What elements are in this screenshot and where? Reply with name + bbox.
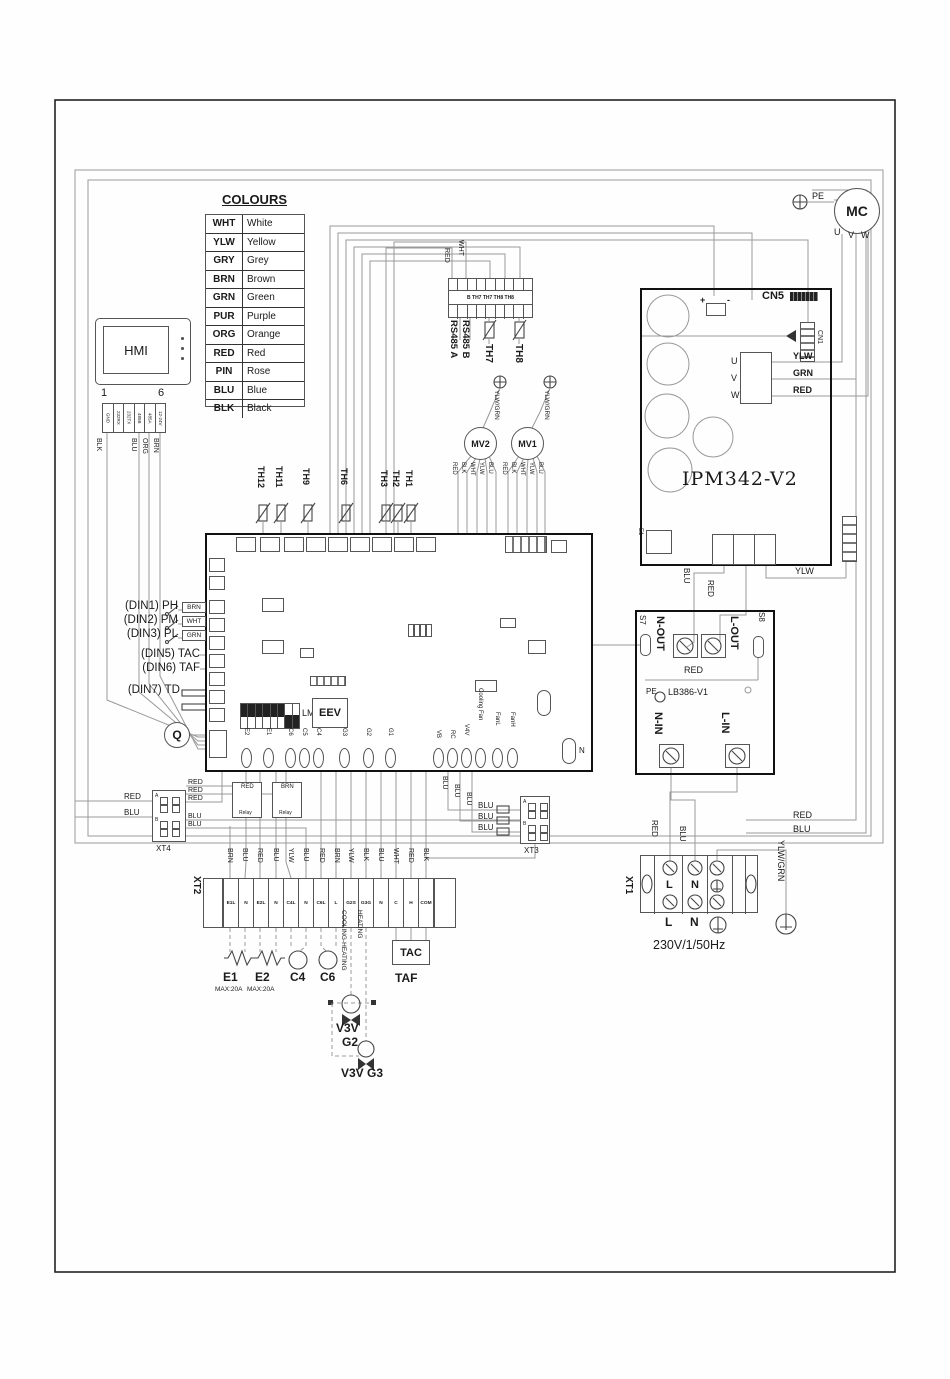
relay-output	[299, 748, 310, 768]
n-out-terminal	[673, 634, 698, 658]
board-connector	[500, 618, 516, 628]
mv1-valve: MV1	[511, 427, 544, 460]
colour-code: GRN	[206, 289, 242, 307]
output-label: C6	[287, 728, 293, 736]
dc-plus: +	[700, 295, 705, 305]
board-connector	[209, 558, 225, 572]
mv2-valve: MV2	[464, 427, 497, 460]
wire-color: RED	[706, 580, 715, 597]
xt2-terminal: C6L	[316, 901, 325, 906]
wire-color: BLU	[188, 821, 202, 828]
wire-color: RED	[256, 848, 263, 863]
lb386-title: LB386-V1	[668, 687, 708, 697]
tac-label: TAC	[400, 947, 422, 959]
hmi-pin: GND	[105, 413, 110, 423]
n-terminal	[562, 738, 576, 764]
output-label: FanL	[494, 712, 500, 726]
sensor-label: TH1	[404, 470, 414, 487]
wire-color: RED	[124, 792, 141, 801]
uvw-terminal-block	[740, 352, 772, 404]
xt1-n-bot: N	[690, 915, 699, 929]
colour-name: Black	[242, 400, 304, 418]
din3-label: (DIN3) PL	[78, 628, 178, 640]
hmi-wires	[107, 433, 205, 749]
phase-u: U	[834, 227, 841, 237]
sensor-label: TH2	[391, 470, 401, 487]
n-in-label: N-IN	[652, 712, 664, 735]
relay-output	[339, 748, 350, 768]
din2-label: (DIN2) PM	[78, 614, 178, 626]
colour-code: ORG	[206, 326, 242, 344]
eev-label: EEV	[319, 707, 341, 719]
tac-box: TAC	[392, 940, 430, 965]
ipm-title: IPM342-V2	[682, 468, 798, 490]
colour-code: GRY	[206, 252, 242, 270]
xt2-terminal: C	[394, 901, 397, 906]
hmi-pin-last: 6	[158, 387, 164, 399]
relay-brn: BRN Relay	[272, 782, 302, 818]
wire-color: GRN	[793, 368, 813, 378]
hmi-pin: 485A	[147, 413, 152, 424]
taf-label: TAF	[395, 971, 417, 985]
xt2-terminal: H	[409, 901, 412, 906]
relay-red: RED Relay	[232, 782, 262, 818]
wire-color: BRN	[226, 848, 233, 863]
wire-color: RED	[188, 779, 203, 786]
wire-color: YLW	[793, 351, 813, 361]
xt2-label: XT2	[191, 876, 202, 894]
v3v-label: V3V	[336, 1021, 359, 1035]
wire-color: RED	[684, 665, 703, 675]
wire-color: YLW	[347, 848, 354, 863]
ipm-v: V	[731, 373, 737, 383]
colour-code: WHT	[206, 215, 242, 233]
phase-v: V	[848, 230, 854, 240]
wire-color: BRN	[187, 604, 201, 611]
wire-color: WHT	[457, 240, 464, 256]
wire-color: YLW	[478, 462, 484, 475]
s8-label: S8	[757, 612, 766, 622]
hmi-button-icon	[181, 357, 184, 360]
xt2-terminal: G2S	[346, 901, 356, 906]
wire-color: BLU	[377, 848, 384, 862]
hmi-pin: 12-24V	[158, 411, 163, 426]
wire-color: RED	[188, 787, 203, 794]
load-e1-max: MAX:20A	[215, 986, 242, 993]
hmi-label: HMI	[124, 343, 148, 358]
colour-name: White	[242, 215, 304, 233]
e1-label: E1	[637, 528, 643, 535]
xt2-terminal: N	[244, 901, 247, 906]
relay-output	[492, 748, 503, 768]
board-connector	[209, 730, 227, 758]
wire-color: BLU	[678, 826, 687, 842]
rs485a-label: RS485 A	[448, 320, 459, 358]
wire-color: BLU	[130, 438, 137, 452]
board-connector	[260, 537, 280, 552]
colour-code: BRN	[206, 271, 242, 289]
colour-name: Brown	[242, 271, 304, 289]
xt2-terminal: N	[304, 901, 307, 906]
xt2-endcap	[434, 878, 456, 928]
row-b: B	[155, 817, 158, 823]
relay-name: Relay	[239, 810, 252, 816]
wire-color: BRN	[333, 848, 340, 863]
wire-color: BLU	[241, 848, 248, 862]
hmi-pin-first: 1	[101, 387, 107, 399]
xt2-terminal: E2L	[257, 901, 266, 906]
g2-label: G2	[342, 1035, 358, 1049]
colour-code: RED	[206, 345, 242, 363]
output-label: G1	[387, 728, 393, 736]
wire-color: BLK	[95, 438, 102, 451]
board-connector	[262, 598, 284, 612]
board-connector	[236, 537, 256, 552]
n-out-label: N-OUT	[654, 616, 666, 651]
wire-color: BLK	[460, 462, 466, 473]
board-connector	[209, 654, 225, 668]
mv2-label: MV2	[471, 439, 490, 449]
board-connector	[505, 536, 547, 553]
cn5-connector	[790, 292, 818, 301]
ipm-w: W	[731, 390, 740, 400]
xt2-endcap	[203, 878, 223, 928]
hmi-pin: 485B	[137, 413, 142, 424]
xt3-block: A B	[520, 796, 550, 844]
dc-link-connector	[706, 303, 726, 316]
colour-code: YLW	[206, 234, 242, 252]
load-e2-max: MAX:20A	[247, 986, 274, 993]
rs485b-label: RS485 B	[460, 320, 471, 359]
eev-driver: EEV	[312, 698, 348, 728]
supply-label: 230V/1/50Hz	[653, 938, 725, 952]
board-connector	[209, 708, 225, 722]
xt2-terminal: C4L	[286, 901, 295, 906]
xt1-n-top: N	[691, 879, 699, 891]
hmi-pin: 232RX	[116, 411, 121, 425]
xt2-terminal: G3G	[361, 901, 371, 906]
board-connector	[209, 576, 225, 590]
output-label: VB	[435, 730, 441, 738]
din7-label: (DIN7) TD	[75, 684, 180, 696]
relay-output	[241, 748, 252, 768]
sensor-label: TH12	[256, 466, 266, 488]
output-label: V4V	[463, 724, 469, 735]
colour-name: Blue	[242, 382, 304, 400]
output-label: C5	[301, 728, 307, 736]
comm-row-label: B TH7 TH7 TH8 TH8	[467, 295, 514, 301]
wire-color: RED	[793, 385, 812, 395]
output-label: RC	[449, 730, 455, 739]
colours-title: COLOURS	[222, 192, 287, 207]
wire-color: RED	[318, 848, 325, 863]
relay-name: Relay	[279, 810, 292, 816]
hmi-screen: HMI	[103, 326, 169, 374]
wire-color: RED	[793, 810, 812, 820]
ipm-u: U	[731, 356, 738, 366]
output-label: FanH	[509, 712, 515, 727]
row-b: B	[523, 821, 526, 827]
q-label: Q	[172, 728, 181, 742]
mv1-label: MV1	[518, 439, 537, 449]
hmi-connector: GND 232RX 232TX 485B 485A 12-24V	[102, 403, 166, 433]
wire-color: WHT	[519, 462, 525, 476]
output-label: E1	[265, 728, 271, 735]
board-connector	[416, 537, 436, 552]
wire-color: YLW	[795, 566, 814, 576]
xt3-label: XT3	[524, 846, 539, 855]
colour-code: PUR	[206, 308, 242, 326]
relay-output	[263, 748, 274, 768]
wire-color: BLU	[487, 462, 493, 474]
colour-name: Green	[242, 289, 304, 307]
wire-color: BLU	[453, 784, 460, 798]
xt1-block	[640, 855, 758, 913]
v3v-g3-label: V3V G3	[341, 1066, 383, 1080]
output-label: G2	[365, 728, 371, 736]
wiring-diagram-page: COLOURS WHTWhite YLWYellow GRYGrey BRNBr…	[0, 0, 950, 1379]
colour-code: BLK	[206, 400, 242, 418]
relay-output	[385, 748, 396, 768]
xt4-label: XT4	[156, 844, 171, 853]
n-label: N	[579, 746, 585, 755]
sensor-label: TH6	[339, 468, 349, 485]
wire-color: BLU	[441, 776, 448, 790]
colour-code: PIN	[206, 363, 242, 381]
xt2-terminal: N	[274, 901, 277, 906]
phase-w: W	[861, 230, 870, 240]
relay-output	[461, 748, 472, 768]
board-connector	[350, 537, 370, 552]
output-label: C4	[315, 728, 321, 736]
colour-name: Red	[242, 345, 304, 363]
compressor-label: MC	[846, 203, 868, 219]
board-connector	[209, 690, 225, 704]
wire-color: BLU	[478, 812, 494, 821]
th8-label: TH8	[513, 344, 524, 363]
dc-minus: -	[727, 295, 730, 305]
wire-color: YLW/GRN	[776, 840, 786, 881]
wire-color: RED	[407, 848, 414, 863]
load-c6: C6	[320, 970, 335, 984]
board-connector	[262, 640, 284, 654]
board-connector	[537, 690, 551, 716]
eev-connector	[310, 676, 346, 686]
wire-color: BLU	[272, 848, 279, 862]
wire-color: BLU	[537, 462, 543, 474]
relay-output	[313, 748, 324, 768]
wire-color: YLW	[287, 848, 294, 863]
n-in-terminal	[659, 744, 684, 768]
s7-label: S7	[638, 615, 647, 625]
pe-wire-label: YLW/GRN	[543, 390, 550, 420]
s8-connector	[753, 636, 764, 658]
xt1-l-bot: L	[665, 915, 672, 929]
wire-color: BLK	[422, 848, 429, 861]
board-connector	[209, 672, 225, 686]
wire-color: BLU	[124, 808, 140, 817]
board-connector	[209, 636, 225, 650]
din1-label: (DIN1) PH	[78, 600, 178, 612]
wire-color: YLW	[528, 462, 534, 475]
hmi-pin: 232TX	[126, 411, 131, 424]
heating-label: HEATING	[356, 910, 363, 938]
colour-name: Purple	[242, 308, 304, 326]
sensor-label: TH11	[274, 466, 284, 488]
wire-color: BLU	[682, 568, 691, 584]
board-connector	[300, 648, 314, 658]
board-connector	[372, 537, 392, 552]
wire-color: BLK	[510, 462, 516, 473]
colour-code: BLU	[206, 382, 242, 400]
l-in-label: L-IN	[719, 712, 731, 733]
board-connector	[528, 640, 546, 654]
cn1-label: CN1	[816, 330, 823, 344]
load-e1: E1	[223, 970, 238, 984]
colours-table: WHTWhite YLWYellow GRYGrey BRNBrown GRNG…	[205, 214, 305, 407]
wire-color: RED	[188, 795, 203, 802]
relay-coil-color: BRN	[281, 784, 294, 790]
output-label: G3	[341, 728, 347, 736]
wire-color: BRN	[152, 438, 159, 453]
xt4-block: A B	[152, 790, 186, 842]
board-connector	[328, 537, 348, 552]
s7-connector	[640, 634, 651, 656]
relay-output	[433, 748, 444, 768]
wire-color: RED	[650, 820, 659, 837]
edge-connector	[842, 516, 857, 562]
board-connector	[551, 540, 567, 553]
board-connector	[394, 537, 414, 552]
pe-wire-label: YLW/GRN	[493, 390, 500, 420]
wire-color: RED	[451, 462, 457, 475]
q-switch: Q	[164, 722, 190, 748]
din5-label: (DIN5) TAC	[88, 648, 200, 660]
wire-color: GRN	[187, 632, 201, 639]
hmi-button-icon	[181, 347, 184, 350]
xt2-strip: E1L N E2L N C4L N C6L L G2S G3G N C H CO…	[223, 878, 434, 928]
th7-label: TH7	[483, 344, 494, 363]
wire-color: RED	[501, 462, 507, 475]
cn5-label: CN5	[762, 290, 784, 302]
wire-color: BLU	[793, 824, 811, 834]
xt2-terminal: COM	[420, 901, 431, 906]
row-a: A	[523, 799, 526, 805]
relay-output	[363, 748, 374, 768]
e1-terminal	[646, 530, 672, 554]
dip-switch	[240, 703, 300, 729]
wire-color: BLU	[478, 823, 494, 832]
relay-output	[285, 748, 296, 768]
cooling-heating-label: COOLING-HEATING	[340, 910, 347, 971]
wire-color: ORG	[141, 438, 148, 454]
board-connector	[408, 624, 432, 637]
output-label: Cooling Fan	[477, 688, 483, 720]
colour-name: Orange	[242, 326, 304, 344]
relay-output	[475, 748, 486, 768]
wire-color: BLU	[302, 848, 309, 862]
wire-color: RED	[443, 248, 450, 263]
hmi-button-icon	[181, 337, 184, 340]
comm-connector: B TH7 TH7 TH8 TH8	[448, 278, 533, 318]
output-label: E2	[243, 728, 249, 735]
xt2-terminal: L	[335, 901, 338, 906]
sensor-label: TH9	[301, 468, 311, 485]
xt1-l-top: L	[666, 879, 673, 891]
wire-color: WHT	[187, 618, 202, 625]
l-out-terminal	[701, 634, 726, 658]
pe-label: PE	[812, 191, 824, 201]
row-a: A	[155, 793, 158, 799]
relay-coil-color: RED	[241, 784, 254, 790]
xt1-label: XT1	[623, 876, 634, 894]
wire-color: BLU	[465, 792, 472, 806]
load-e2: E2	[255, 970, 270, 984]
relay-output	[507, 748, 518, 768]
board-connector	[306, 537, 326, 552]
wire-color: BLK	[362, 848, 369, 861]
l-out-label: L-OUT	[728, 616, 740, 650]
xt2-terminal: N	[379, 901, 382, 906]
board-connector	[209, 600, 225, 614]
board-connector	[209, 618, 225, 632]
sensor-label: TH3	[379, 470, 389, 487]
wire-color: BLU	[188, 813, 202, 820]
colour-name: Grey	[242, 252, 304, 270]
wire-color: WHT	[469, 462, 475, 476]
l-in-terminal	[725, 744, 750, 768]
pe-label: PE	[646, 687, 657, 696]
xt2-terminal: E1L	[227, 901, 236, 906]
din6-label: (DIN6) TAF	[88, 662, 200, 674]
colour-name: Yellow	[242, 234, 304, 252]
compressor: MC	[834, 188, 880, 234]
board-connector	[284, 537, 304, 552]
wire-color: WHT	[392, 848, 399, 864]
colour-name: Rose	[242, 363, 304, 381]
wire-color: BLU	[478, 801, 494, 810]
ac-terminal-block	[712, 534, 776, 565]
load-c4: C4	[290, 970, 305, 984]
relay-output	[447, 748, 458, 768]
hmi-panel: HMI	[95, 318, 191, 385]
